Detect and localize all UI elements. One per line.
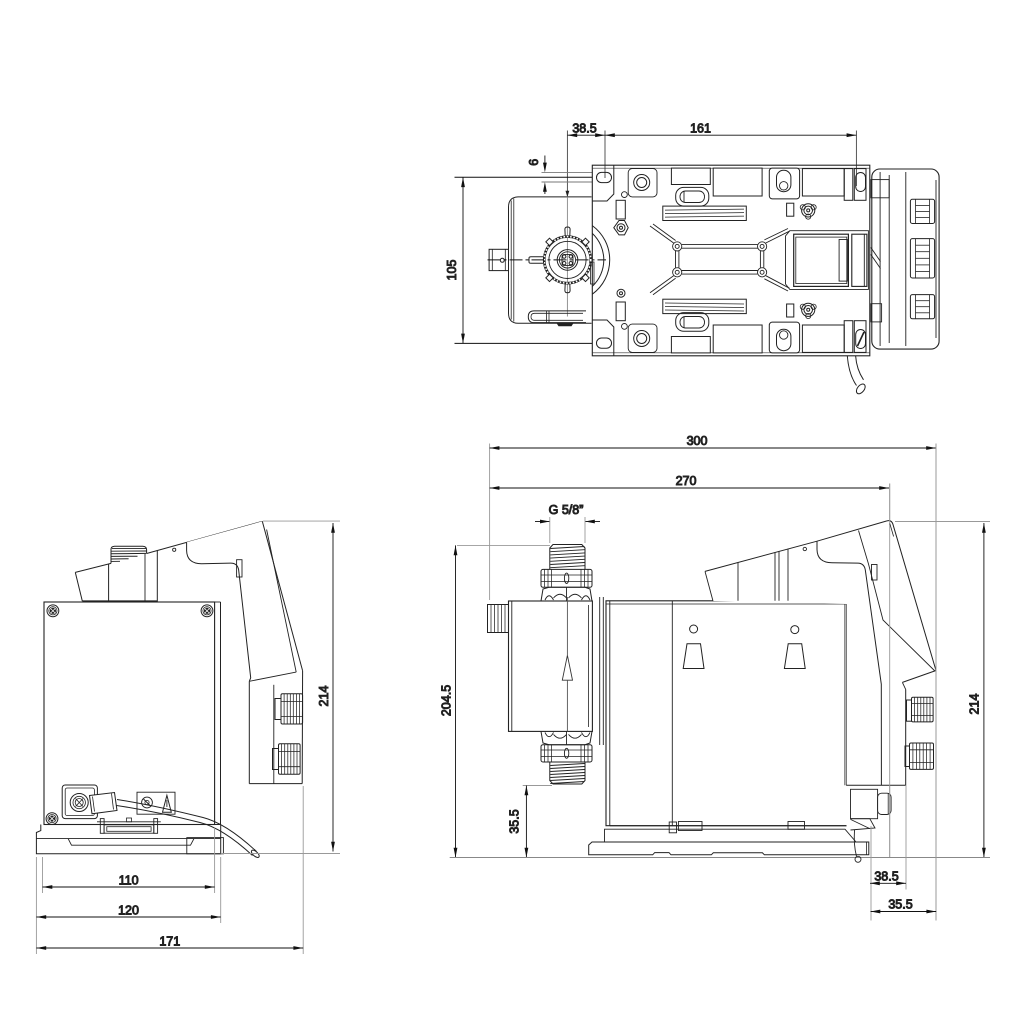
svg-text:300: 300	[687, 434, 708, 448]
svg-text:120: 120	[118, 903, 139, 917]
svg-text:105: 105	[445, 260, 459, 281]
svg-text:270: 270	[676, 474, 697, 488]
svg-text:6: 6	[527, 159, 541, 166]
svg-text:38.5: 38.5	[874, 870, 898, 884]
svg-text:214: 214	[317, 686, 331, 707]
svg-text:204.5: 204.5	[440, 685, 454, 716]
svg-text:110: 110	[119, 873, 139, 887]
svg-text:35.5: 35.5	[508, 809, 522, 833]
svg-text:G 5/8”: G 5/8”	[549, 503, 584, 517]
svg-text:35.5: 35.5	[888, 898, 912, 912]
svg-text:214: 214	[968, 694, 982, 715]
svg-text:38.5: 38.5	[572, 122, 596, 136]
svg-text:171: 171	[159, 934, 180, 948]
svg-text:161: 161	[690, 122, 711, 136]
